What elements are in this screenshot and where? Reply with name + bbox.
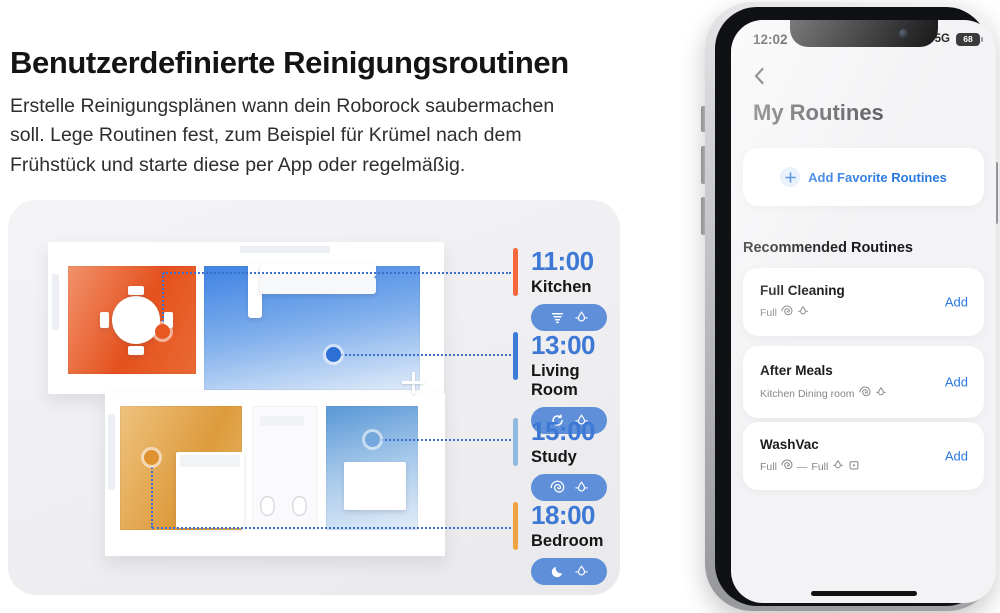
routine-card-full-cleaning[interactable]: Full Cleaning Full Add: [743, 268, 984, 336]
schedule-mode-pill: [531, 474, 607, 501]
schedule-time: 13:00: [531, 332, 620, 358]
phone-mockup: 12:02 5G 68: [700, 2, 997, 611]
routine-title: WashVac: [760, 437, 819, 452]
toilet: [260, 496, 275, 516]
pan-cross-icon: [402, 381, 424, 384]
vacuum-icon: [550, 310, 565, 325]
sofa: [260, 277, 376, 294]
back-button[interactable]: [753, 66, 769, 86]
schedule-room: Living Room: [531, 362, 620, 400]
network-label: 5G: [935, 33, 950, 45]
window: [240, 246, 330, 253]
phone-screen: 12:02 5G 68: [731, 20, 996, 603]
floorplan-showcase-card: 11:00 Kitchen 13:00 Living Room: [8, 200, 620, 595]
mop-icon: [832, 459, 844, 474]
battery-tip: [981, 37, 983, 42]
battery-level: 68: [963, 35, 972, 44]
leader-line-study: [373, 439, 511, 441]
schedule-room: Bedroom: [531, 532, 607, 551]
page-description: Erstelle Reinigungsplänen wann dein Robo…: [10, 92, 554, 180]
phone-notch: [790, 20, 938, 47]
routine-title: Full Cleaning: [760, 283, 845, 298]
schedule-item-bedroom: 18:00 Bedroom: [513, 502, 607, 585]
vacuum-icon: [859, 386, 871, 401]
add-routine-button[interactable]: Add: [945, 295, 968, 310]
status-time: 12:02: [753, 32, 788, 47]
vacuum-icon: [781, 305, 793, 320]
study-desk: [344, 462, 406, 510]
description-line: soll. Lege Routinen fest, zum Beispiel f…: [10, 121, 554, 150]
sofa: [260, 264, 376, 277]
schedule-bar: [513, 248, 518, 296]
section-title: Recommended Routines: [743, 240, 913, 256]
add-favorite-routines-button[interactable]: Add Favorite Routines: [743, 148, 984, 206]
description-line: Frühstück und starte diese per App oder …: [10, 151, 554, 180]
leader-line-bedroom: [152, 527, 511, 529]
schedule-room: Study: [531, 448, 607, 467]
schedule-bar: [513, 418, 518, 466]
routine-subtitle: Full: [760, 305, 809, 320]
dock-icon: [848, 459, 860, 474]
leader-line-living: [334, 354, 511, 356]
mop-icon: [574, 564, 589, 579]
phone-bezel: 12:02 5G 68: [715, 7, 988, 606]
spiral-icon: [550, 480, 565, 495]
schedule-bar: [513, 332, 518, 380]
kitchen-chair: [128, 346, 144, 355]
routine-subtitle-dash: —: [797, 461, 808, 473]
study-marker-dot: [365, 432, 380, 447]
routine-subtitle-text: Kitchen Dining room: [760, 388, 855, 400]
front-camera: [899, 29, 908, 38]
kitchen-chair: [100, 312, 109, 328]
routine-subtitle: Kitchen Dining room: [760, 386, 887, 401]
mop-icon: [574, 480, 589, 495]
mop-icon: [574, 310, 589, 325]
add-favorite-label: Add Favorite Routines: [808, 170, 947, 185]
screen-title: My Routines: [753, 100, 884, 126]
battery-icon: 68: [956, 33, 980, 46]
moon-icon: [550, 564, 565, 579]
schedule-item-kitchen: 11:00 Kitchen: [513, 248, 607, 331]
routine-subtitle-text: Full: [760, 461, 777, 473]
routine-card-after-meals[interactable]: After Meals Kitchen Dining room Add: [743, 346, 984, 418]
home-indicator[interactable]: [811, 591, 917, 596]
vacuum-icon: [781, 459, 793, 474]
kitchen-marker-dot: [155, 324, 170, 339]
phone-frame: 12:02 5G 68: [705, 2, 995, 611]
routine-subtitle-text: Full: [811, 461, 828, 473]
description-line: Erstelle Reinigungsplänen wann dein Robo…: [10, 92, 554, 121]
schedule-time: 15:00: [531, 418, 607, 444]
kitchen-chair: [128, 286, 144, 295]
bedroom-marker-dot: [144, 450, 159, 465]
routine-subtitle: Full — Full: [760, 459, 860, 474]
bathroom-sink: [260, 416, 304, 426]
bed-pillow: [180, 455, 240, 467]
mop-icon: [875, 386, 887, 401]
routine-title: After Meals: [760, 363, 833, 378]
window: [52, 274, 59, 330]
toilet: [292, 496, 307, 516]
schedule-time: 18:00: [531, 502, 607, 528]
schedule-mode-pill: [531, 558, 607, 585]
mop-icon: [797, 305, 809, 320]
routine-card-washvac[interactable]: WashVac Full — Full Add: [743, 422, 984, 490]
schedule-item-study: 15:00 Study: [513, 418, 607, 501]
schedule-room: Kitchen: [531, 278, 607, 297]
page-title: Benutzerdefinierte Reinigungsroutinen: [10, 45, 569, 81]
schedule-bar: [513, 502, 518, 550]
add-routine-button[interactable]: Add: [945, 375, 968, 390]
leader-line-kitchen: [162, 273, 164, 329]
add-routine-button[interactable]: Add: [945, 449, 968, 464]
schedule-mode-pill: [531, 304, 607, 331]
routine-subtitle-text: Full: [760, 307, 777, 319]
kitchen-table: [112, 296, 160, 344]
page: Benutzerdefinierte Reinigungsroutinen Er…: [0, 0, 1000, 613]
leader-line-bedroom: [151, 460, 153, 528]
plus-icon: [780, 167, 800, 187]
living-room-marker-dot: [326, 347, 341, 362]
schedule-time: 11:00: [531, 248, 607, 274]
window: [108, 414, 115, 490]
leader-line-kitchen: [163, 272, 511, 274]
